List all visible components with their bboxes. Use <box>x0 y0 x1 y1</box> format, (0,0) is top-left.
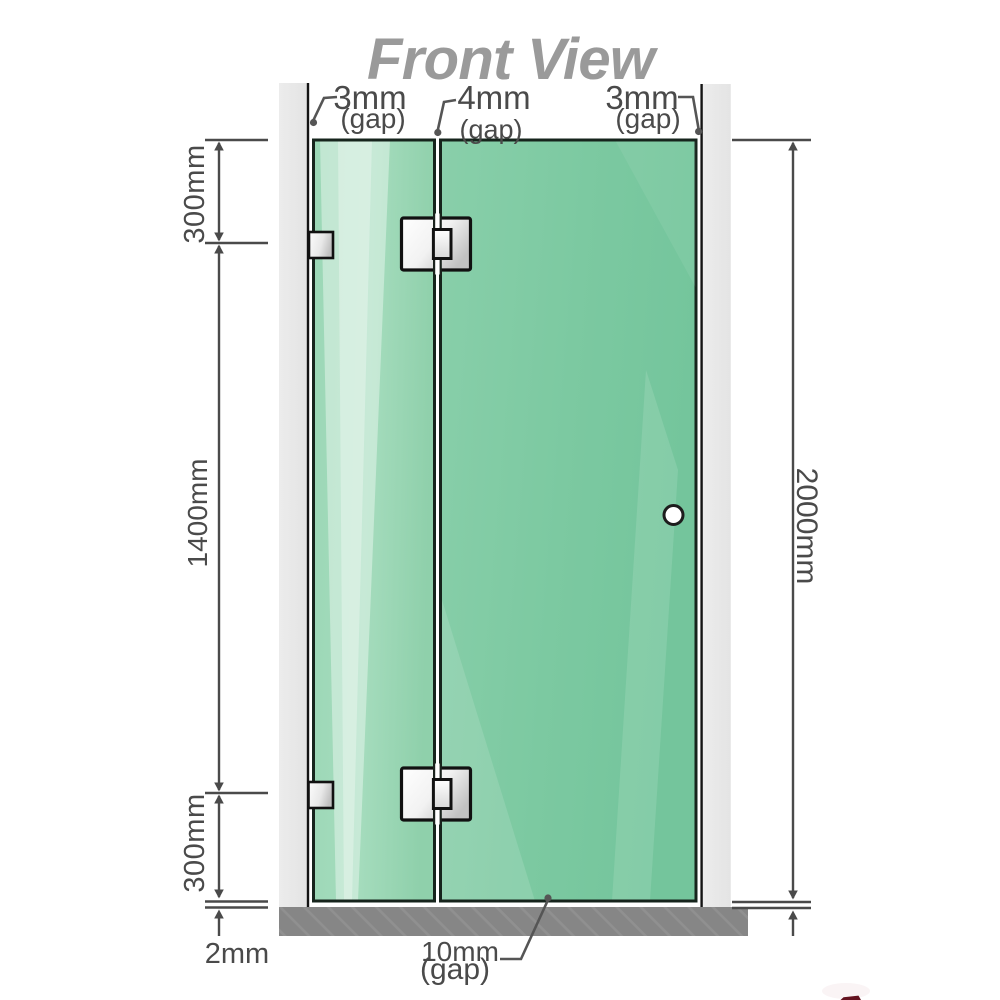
svg-text:(gap): (gap) <box>340 103 405 134</box>
svg-text:2000mm: 2000mm <box>790 468 823 585</box>
svg-text:2mm: 2mm <box>205 938 269 970</box>
svg-text:300mm: 300mm <box>179 793 211 892</box>
svg-text:1400mm: 1400mm <box>182 459 213 568</box>
svg-text:(gap): (gap) <box>420 953 490 986</box>
svg-text:(gap): (gap) <box>459 115 522 145</box>
svg-text:300mm: 300mm <box>179 144 211 243</box>
svg-text:(gap): (gap) <box>615 103 680 134</box>
svg-text:4mm: 4mm <box>457 79 530 116</box>
